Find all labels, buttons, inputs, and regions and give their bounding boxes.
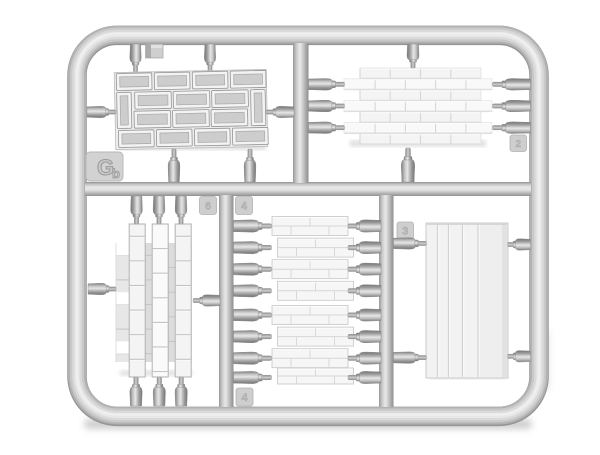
svg-text:6: 6 [205,200,211,212]
svg-text:4: 4 [241,200,248,212]
svg-text:b: b [112,166,120,181]
svg-text:4: 4 [241,392,248,404]
svg-text:3: 3 [402,225,408,237]
svg-text:2: 2 [515,139,521,150]
